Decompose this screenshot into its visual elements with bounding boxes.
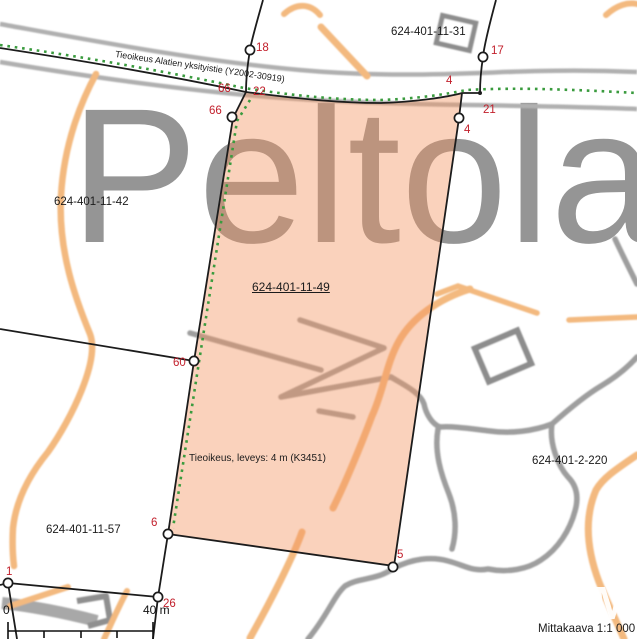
cadastral-map: Peltola <box>0 0 637 639</box>
boundary-marker-66 <box>227 112 236 121</box>
boundary-marker-5 <box>388 562 397 571</box>
point-label-4a: 4 <box>446 75 452 87</box>
parcel-label-2-220[interactable]: 624-401-2-220 <box>532 455 607 467</box>
scale-bar <box>8 622 153 639</box>
parcel-label-11-42[interactable]: 624-401-11-42 <box>54 196 129 208</box>
point-label-5: 5 <box>397 549 403 561</box>
point-label-66a: 66 <box>218 83 231 95</box>
point-label-22: 22 <box>253 86 266 98</box>
point-label-66b: 66 <box>209 105 222 117</box>
parcel-label-11-57[interactable]: 624-401-11-57 <box>46 524 121 536</box>
boundary-junction-dot <box>478 91 482 95</box>
parcel-label-11-49-selected[interactable]: 624-401-11-49 <box>252 280 330 294</box>
selected-parcel-fill[interactable] <box>168 92 462 566</box>
point-label-4b: 4 <box>464 124 470 136</box>
scale-end-label: 40 m <box>143 603 170 617</box>
boundary-marker-4 <box>454 113 463 122</box>
boundary-marker-18 <box>245 45 254 54</box>
point-label-60: 60 <box>173 357 186 369</box>
parcel-label-11-31[interactable]: 624-401-11-31 <box>391 26 466 38</box>
boundary-marker-17 <box>478 52 487 61</box>
building-symbol-east <box>475 330 531 381</box>
point-label-18: 18 <box>256 42 269 54</box>
easement-width-label: Tieoikeus, leveys: 4 m (K3451) <box>189 453 326 464</box>
scale-start-label: 0 <box>3 603 10 617</box>
point-label-17: 17 <box>491 45 504 57</box>
boundary-marker-60 <box>189 356 198 365</box>
point-label-21: 21 <box>483 104 496 116</box>
road-edge-upper <box>0 24 637 75</box>
point-label-1: 1 <box>6 566 12 578</box>
boundary-marker-6 <box>163 529 172 538</box>
map-canvas <box>0 0 637 639</box>
boundary-marker-26 <box>153 592 162 601</box>
point-label-6: 6 <box>151 517 157 529</box>
watermark-m: M <box>593 580 631 626</box>
boundary-marker-1 <box>3 578 12 587</box>
